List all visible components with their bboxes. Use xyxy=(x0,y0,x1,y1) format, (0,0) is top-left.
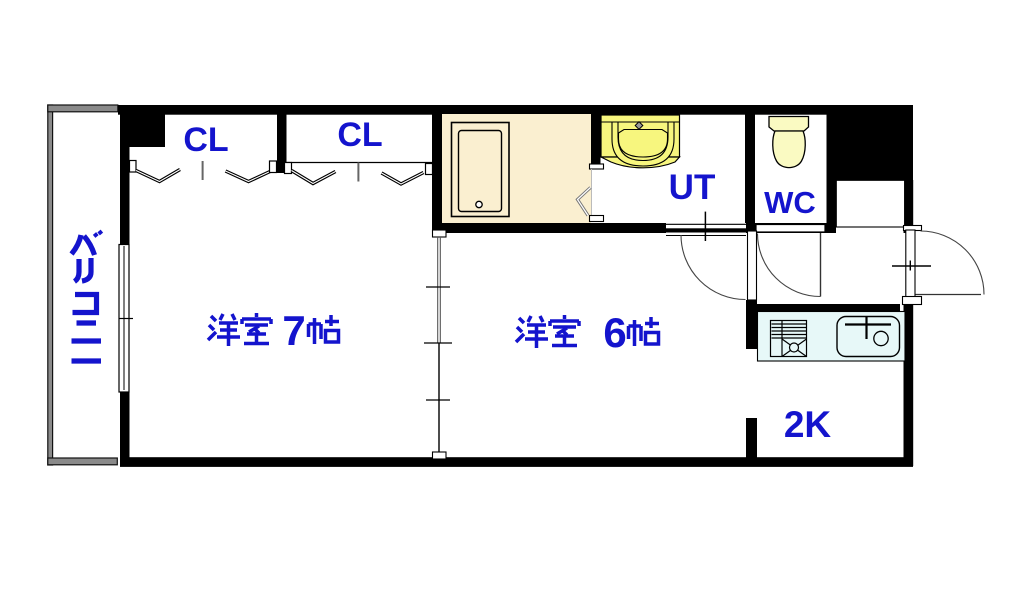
svg-text:6: 6 xyxy=(603,309,626,356)
svg-text:CL: CL xyxy=(337,116,382,154)
svg-text:CL: CL xyxy=(183,121,228,159)
svg-text:2K: 2K xyxy=(784,404,832,445)
svg-text:UT: UT xyxy=(669,168,716,207)
svg-text:WC: WC xyxy=(764,185,816,220)
svg-text:7: 7 xyxy=(282,307,305,354)
